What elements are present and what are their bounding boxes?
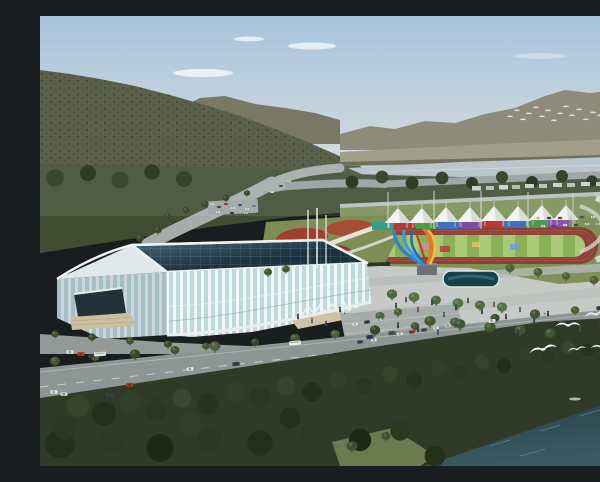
car [596,223,600,225]
car [352,322,358,326]
car [364,320,370,324]
car [409,330,415,334]
car [591,216,595,218]
person [437,329,439,335]
panel [372,222,393,230]
car [558,217,562,219]
panel [567,183,575,187]
panel [596,182,600,186]
car [252,205,256,207]
bush [198,427,222,451]
car [445,324,451,328]
bush [355,377,373,395]
bush [541,351,555,365]
car [50,390,57,394]
car [574,224,578,226]
bush [582,344,595,357]
bush [452,365,467,380]
car [585,223,589,225]
bush [425,446,446,466]
person [405,297,407,302]
car [60,392,67,396]
bush [436,172,449,185]
infield-stripes [371,235,575,257]
car [376,318,382,322]
panel [504,220,525,228]
person [297,314,299,319]
bush [302,382,321,401]
person [519,307,521,312]
bush [390,421,409,440]
car [552,225,556,227]
car [596,306,600,311]
panel [460,221,481,229]
bush [224,382,243,401]
person [325,321,327,326]
car [232,362,240,367]
bush [430,360,446,376]
bush [519,347,533,361]
person [493,302,495,307]
aerial-rendering: Aerial architectural rendering of a rive… [40,16,600,466]
car [388,331,396,336]
bush [406,177,419,190]
car [488,319,496,324]
scene-canvas [40,16,600,466]
person [455,305,457,310]
bush [179,413,201,435]
car [371,338,377,342]
bush [299,425,321,447]
bush [92,402,116,426]
car [270,191,274,193]
car [536,217,540,219]
car [238,204,242,206]
bush [497,359,511,373]
person [311,318,313,323]
person [417,307,419,312]
person [547,311,549,316]
bush [329,371,347,389]
car [231,207,235,209]
person [517,329,519,335]
bush [198,394,219,415]
car [210,203,214,205]
car [245,208,249,210]
car [224,203,228,205]
panel [438,221,459,229]
person [505,314,507,319]
person [339,307,341,312]
person [467,298,469,303]
bus [94,351,106,356]
car [397,332,403,336]
panel [472,186,481,191]
car [106,393,113,397]
car [569,217,573,219]
person [481,309,483,314]
car [126,383,133,387]
bush [144,164,159,179]
person [579,326,581,332]
car [217,206,221,208]
panel [581,182,590,186]
car [230,212,234,214]
bush [556,170,568,182]
car [66,350,73,354]
bush [145,399,167,421]
person [431,300,433,305]
bush [496,171,508,183]
bush [172,388,191,407]
car [563,224,567,226]
panel [394,222,415,230]
panel [539,184,547,188]
panel [553,183,562,187]
bush [67,395,89,417]
car [541,225,545,227]
car [580,216,584,218]
bush [53,416,77,440]
tree [50,357,60,367]
bush [276,376,295,395]
boat-wake [569,398,581,401]
reflecting-pool [443,271,499,287]
person [443,312,445,317]
panel [512,185,520,189]
bush [120,392,141,413]
car [77,352,84,356]
bush [406,372,422,388]
car [433,326,439,330]
bush [475,355,489,369]
gymnasium-arena [57,240,390,353]
panel [525,184,534,188]
bush [382,366,398,382]
car [216,211,220,213]
car [244,212,248,214]
car [186,367,194,371]
bush [247,430,273,456]
car [357,340,363,344]
bush [146,434,173,461]
panel [499,185,508,190]
bush [176,171,192,187]
car [547,217,551,219]
person [395,303,397,308]
bush [46,169,64,187]
bush [112,172,129,189]
car [287,180,291,182]
person [397,322,399,328]
car [279,185,283,187]
bush [280,408,301,429]
bush [376,171,389,184]
car [421,328,427,332]
bush [250,388,271,409]
bush [80,165,96,181]
panel [486,186,494,190]
person [417,326,419,332]
bush [346,176,359,189]
person [533,318,535,323]
bush [562,341,575,354]
